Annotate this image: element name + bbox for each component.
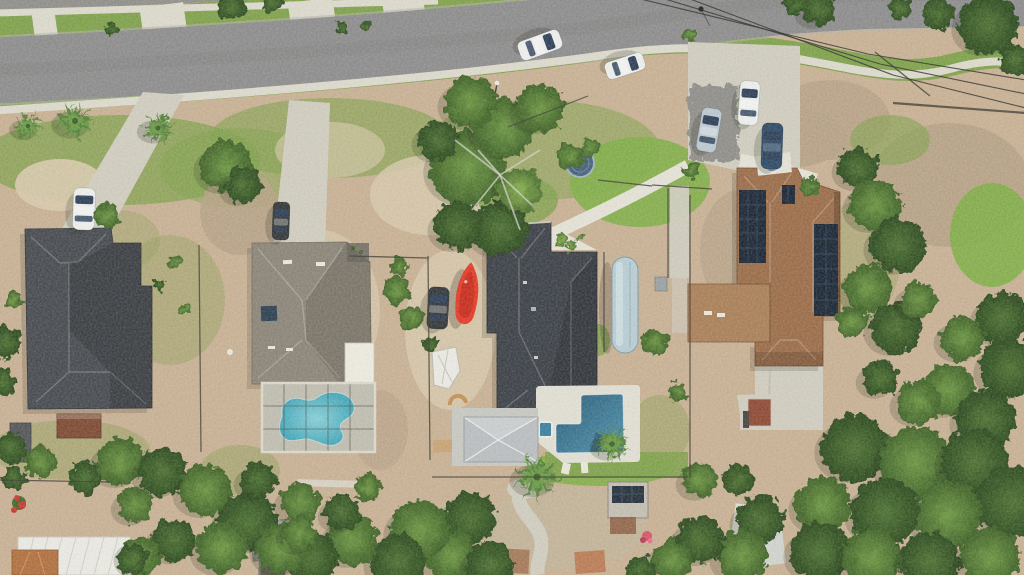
aerial-photo-stage — [0, 0, 1024, 575]
overlays — [0, 0, 1024, 575]
grain-dark — [0, 0, 1024, 575]
aerial-photo — [0, 0, 1024, 575]
